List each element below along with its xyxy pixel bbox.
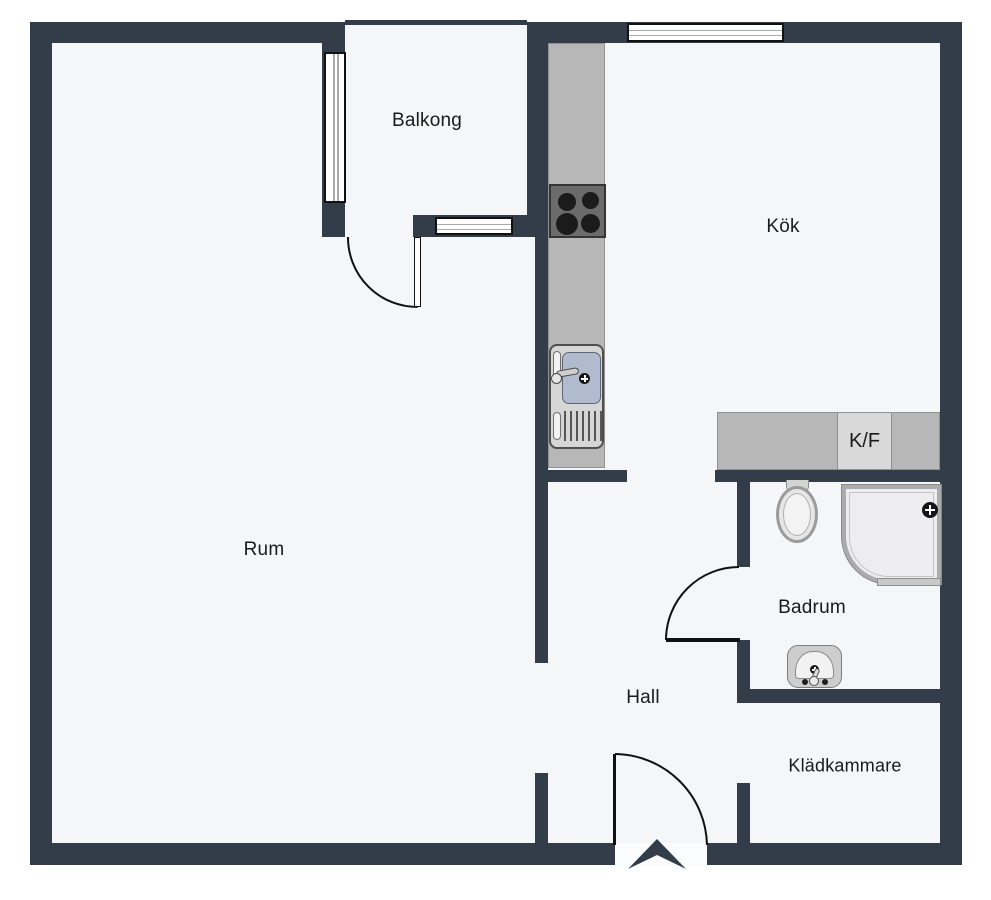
window-pane-line [629,35,782,37]
wall-outer-left [30,22,52,865]
kitchen-window-icon [627,23,784,42]
kf-label: K/F [849,430,880,453]
window-pane-line [337,54,339,201]
balcony-railing [345,20,527,25]
wall-bathroom-left-upper [737,482,750,567]
faucet-icon [551,373,562,384]
balcony-window-icon [435,217,513,235]
balcony-side-window-icon [324,52,346,203]
stove-burner [558,193,576,211]
shower-icon [842,485,941,584]
kitchen-sink-icon [549,344,604,449]
wall-outer-bottom-right [707,843,962,865]
bathroom-door-leaf [666,638,740,642]
floorplan-canvas: K/F Balkong Kök Rum [0,0,991,900]
room-label-kok: Kök [766,216,799,238]
wall-rum-hall-stub [535,773,548,843]
wall-outer-top-left [30,22,345,43]
window-pane-line [437,224,511,226]
bathroom-sink-icon [787,645,842,688]
wall-outer-right [940,22,962,865]
room-label-badrum: Badrum [778,597,846,619]
faucet-icon [809,676,819,686]
sink-side-rail [553,412,561,440]
window-pane-line [629,30,782,32]
window-pane-line [333,54,335,201]
toilet-icon [776,486,818,543]
entrance-door-leaf [613,754,616,845]
drain-icon [579,373,590,384]
tap-dot [802,679,808,685]
drainboard-icon [564,411,602,441]
room-label-kladkammare: Klädkammare [788,756,901,777]
balcony-door-leaf [414,237,421,307]
shower-head-icon [922,502,938,518]
tap-dot [822,679,828,685]
wall-rum-kitchen-divider [535,237,548,663]
toilet-seat [783,493,811,536]
wall-outer-bottom-left [30,843,615,865]
wall-kladkammare-stub [737,783,750,843]
shower-door-bar [877,578,941,586]
fridge-freezer-unit: K/F [837,412,892,470]
entrance-doorway-floor [615,843,707,865]
window-pane-line [437,229,511,231]
kitchen-counter-bottom [717,412,940,470]
stove-icon [549,184,606,238]
room-label-hall: Hall [626,687,660,709]
stove-burner [581,214,600,233]
room-label-rum: Rum [244,539,285,561]
wall-balcony-right [527,25,548,237]
wall-kitchen-hall-stub [535,470,627,482]
room-label-balkong: Balkong [392,110,462,132]
stove-burner [556,213,578,235]
wall-bathroom-bottom [737,689,940,703]
wall-bathroom-top [715,470,940,482]
shower-tray [849,492,934,577]
stove-burner [582,192,599,209]
